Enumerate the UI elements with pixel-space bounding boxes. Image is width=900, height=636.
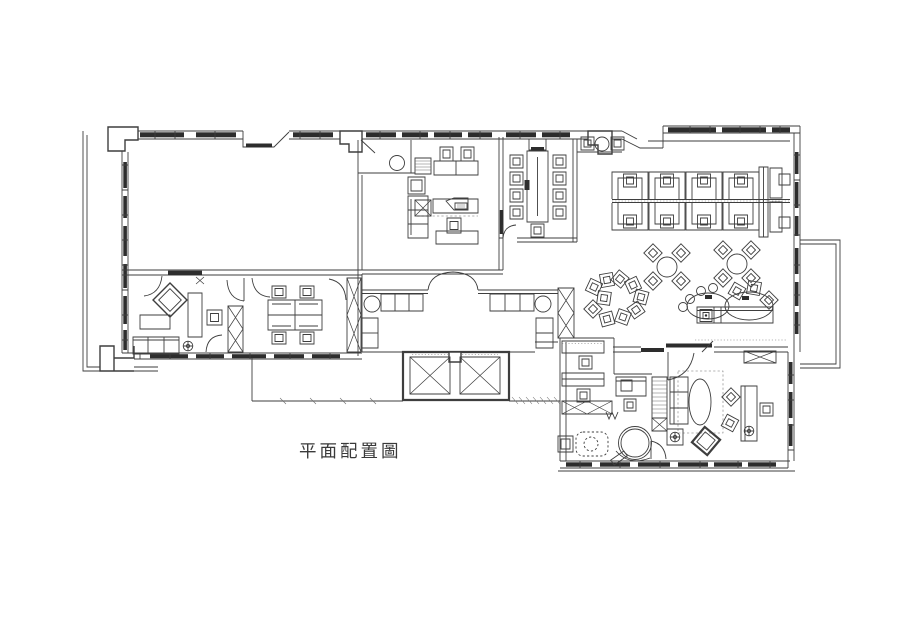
left-balcony-edge	[83, 131, 158, 371]
cafe-tables	[644, 241, 760, 290]
desk	[562, 373, 604, 386]
round-meeting-table	[611, 427, 652, 466]
conference-table	[525, 151, 549, 222]
desk	[770, 168, 782, 198]
bar-counter	[679, 280, 779, 323]
cabinet-x	[562, 401, 612, 414]
entry-door-arcs	[428, 272, 478, 290]
coffee-table	[140, 315, 170, 329]
open-office-workstations	[612, 167, 790, 237]
closet-x	[558, 288, 574, 338]
closet-x	[347, 278, 361, 352]
consult-room	[558, 377, 667, 465]
door-arc	[668, 352, 694, 380]
multipurpose-room	[168, 271, 204, 284]
elevator-car-1	[410, 357, 450, 394]
door-arc	[503, 225, 516, 238]
chair	[779, 174, 790, 185]
terrace-walkway	[252, 358, 560, 404]
chair	[621, 380, 632, 391]
chair	[779, 217, 790, 228]
staff-office	[562, 341, 618, 419]
chair	[577, 389, 590, 402]
bench	[490, 294, 534, 311]
chair	[207, 310, 222, 325]
lectern	[529, 139, 546, 151]
bar-sink	[700, 310, 712, 322]
sofa	[670, 377, 688, 424]
elevator-car-2	[460, 357, 500, 394]
door-arc	[252, 278, 270, 297]
building-shell	[83, 126, 840, 471]
window-segments-top	[140, 127, 790, 147]
conference-room	[510, 139, 566, 237]
end-partition	[759, 167, 768, 237]
door-arc	[329, 279, 346, 300]
chair	[579, 356, 592, 369]
bench	[536, 318, 553, 348]
hatched-counter	[415, 158, 431, 174]
right-balcony	[800, 240, 840, 368]
door-arc	[651, 441, 666, 459]
elevator-pier	[449, 352, 461, 362]
small-meeting-room	[252, 278, 361, 352]
closet-x	[228, 306, 243, 352]
counter	[434, 161, 478, 175]
casual-chair-cluster	[584, 270, 649, 327]
shelf-unit	[652, 377, 667, 418]
stool	[709, 284, 718, 293]
plant-icon	[744, 426, 754, 436]
bench	[362, 318, 378, 348]
conference-chairs	[510, 155, 566, 237]
interior-walls	[122, 137, 788, 380]
massage-chair	[558, 432, 608, 456]
bench	[381, 294, 423, 311]
planter	[667, 429, 683, 445]
floor-plan-svg: 平面配置圖	[0, 0, 900, 636]
accent-table	[692, 427, 720, 455]
oval-rug	[689, 379, 711, 425]
console-desk	[188, 293, 202, 337]
door-leaf	[361, 140, 375, 153]
sink-mark	[606, 412, 618, 419]
column	[340, 131, 362, 152]
floor-plan-page: 平面配置圖	[0, 0, 900, 636]
sofa	[133, 337, 179, 354]
meeting-tables	[268, 300, 322, 330]
chair	[461, 147, 474, 161]
round-table	[657, 257, 677, 277]
entry-lobby	[362, 288, 574, 348]
executive-office	[667, 371, 773, 455]
bench-seats	[408, 177, 428, 238]
pantry-area	[390, 147, 479, 244]
mullion-ticks	[122, 126, 800, 468]
lounge-room	[133, 276, 244, 354]
door-arc	[206, 335, 222, 352]
plan-title: 平面配置圖	[299, 441, 402, 461]
elevator-core	[403, 352, 509, 400]
round-stool	[390, 156, 405, 171]
desk	[562, 341, 604, 353]
column	[100, 346, 134, 371]
round-table	[727, 254, 747, 274]
chair	[624, 399, 636, 411]
round-table	[364, 296, 380, 312]
chair	[760, 403, 773, 416]
plant-icon	[183, 341, 193, 351]
stool	[679, 303, 688, 312]
sliding-door	[168, 271, 202, 275]
column	[108, 127, 138, 151]
round-table	[535, 296, 551, 312]
chair	[440, 147, 453, 161]
work-counter	[433, 198, 478, 213]
door-arc	[227, 278, 244, 301]
